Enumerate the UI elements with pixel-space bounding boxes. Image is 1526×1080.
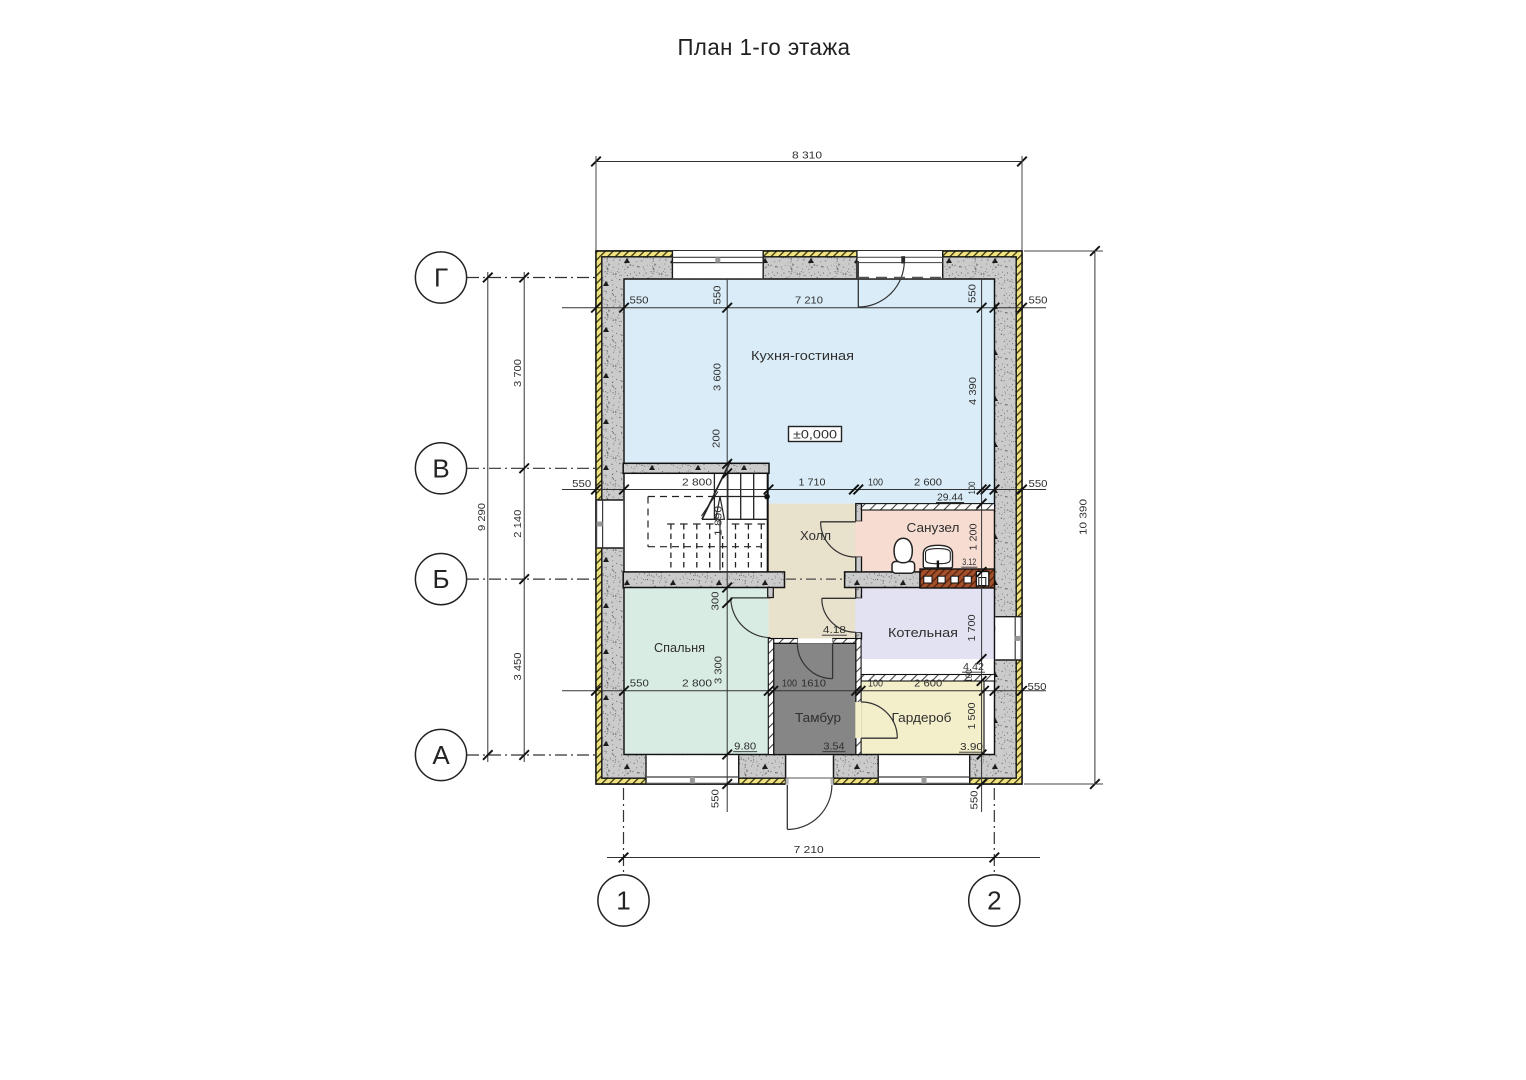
svg-text:2 800: 2 800 <box>682 477 712 489</box>
svg-text:550: 550 <box>572 478 591 490</box>
svg-text:Спальня: Спальня <box>654 640 705 655</box>
svg-text:3 450: 3 450 <box>512 652 524 680</box>
svg-text:Гардероб: Гардероб <box>892 710 952 725</box>
svg-text:1 700: 1 700 <box>966 614 978 641</box>
svg-text:3.90: 3.90 <box>960 741 983 753</box>
svg-text:7 210: 7 210 <box>795 295 823 307</box>
svg-text:Г: Г <box>434 263 448 293</box>
svg-text:2 800: 2 800 <box>682 678 712 690</box>
svg-text:4 390: 4 390 <box>967 377 979 405</box>
svg-text:550: 550 <box>1029 295 1048 307</box>
svg-text:3 300: 3 300 <box>712 656 724 684</box>
svg-text:550: 550 <box>969 790 981 809</box>
svg-text:±0,000: ±0,000 <box>793 428 837 442</box>
svg-text:1: 1 <box>616 886 630 916</box>
svg-text:3 600: 3 600 <box>712 363 724 391</box>
svg-text:1 200: 1 200 <box>968 523 980 550</box>
svg-text:Кухня-гостиная: Кухня-гостиная <box>751 348 854 363</box>
svg-text:29.44: 29.44 <box>937 491 963 503</box>
svg-text:7 210: 7 210 <box>794 844 824 856</box>
svg-text:План 1-го этажа: План 1-го этажа <box>678 34 851 60</box>
svg-text:А: А <box>432 740 450 770</box>
svg-text:3.54: 3.54 <box>824 741 845 753</box>
svg-text:100: 100 <box>868 678 883 690</box>
svg-text:2: 2 <box>987 886 1001 916</box>
svg-text:2 600: 2 600 <box>914 477 942 489</box>
svg-text:1 890: 1 890 <box>712 506 724 536</box>
svg-text:550: 550 <box>630 295 649 307</box>
svg-text:Санузел: Санузел <box>907 520 960 535</box>
svg-text:200: 200 <box>711 429 723 448</box>
svg-text:550: 550 <box>710 789 722 808</box>
svg-text:4.42: 4.42 <box>963 661 984 673</box>
svg-text:100: 100 <box>782 678 797 690</box>
svg-text:4.18: 4.18 <box>823 624 846 636</box>
svg-text:2 140: 2 140 <box>512 510 524 538</box>
svg-text:1 500: 1 500 <box>966 702 978 729</box>
svg-text:550: 550 <box>1028 681 1047 693</box>
svg-text:300: 300 <box>710 591 722 610</box>
svg-text:1 710: 1 710 <box>799 477 826 489</box>
svg-text:В: В <box>432 453 449 483</box>
svg-text:3 700: 3 700 <box>512 359 524 387</box>
svg-text:2 600: 2 600 <box>914 678 942 690</box>
svg-text:100: 100 <box>868 477 883 489</box>
svg-text:Котельная: Котельная <box>888 625 958 640</box>
svg-text:3.12: 3.12 <box>962 557 976 568</box>
svg-text:550: 550 <box>630 678 649 690</box>
svg-text:9 290: 9 290 <box>476 503 488 531</box>
svg-text:100: 100 <box>967 482 978 495</box>
svg-text:550: 550 <box>967 284 979 303</box>
svg-text:Б: Б <box>432 564 449 594</box>
svg-text:550: 550 <box>712 285 724 304</box>
svg-text:550: 550 <box>1029 478 1048 490</box>
svg-text:8 310: 8 310 <box>792 150 822 162</box>
svg-text:10 390: 10 390 <box>1078 499 1090 535</box>
svg-text:9.80: 9.80 <box>734 741 756 753</box>
svg-text:1610: 1610 <box>801 678 826 690</box>
svg-text:Тамбур: Тамбур <box>795 710 841 725</box>
svg-text:Холл: Холл <box>800 528 831 543</box>
